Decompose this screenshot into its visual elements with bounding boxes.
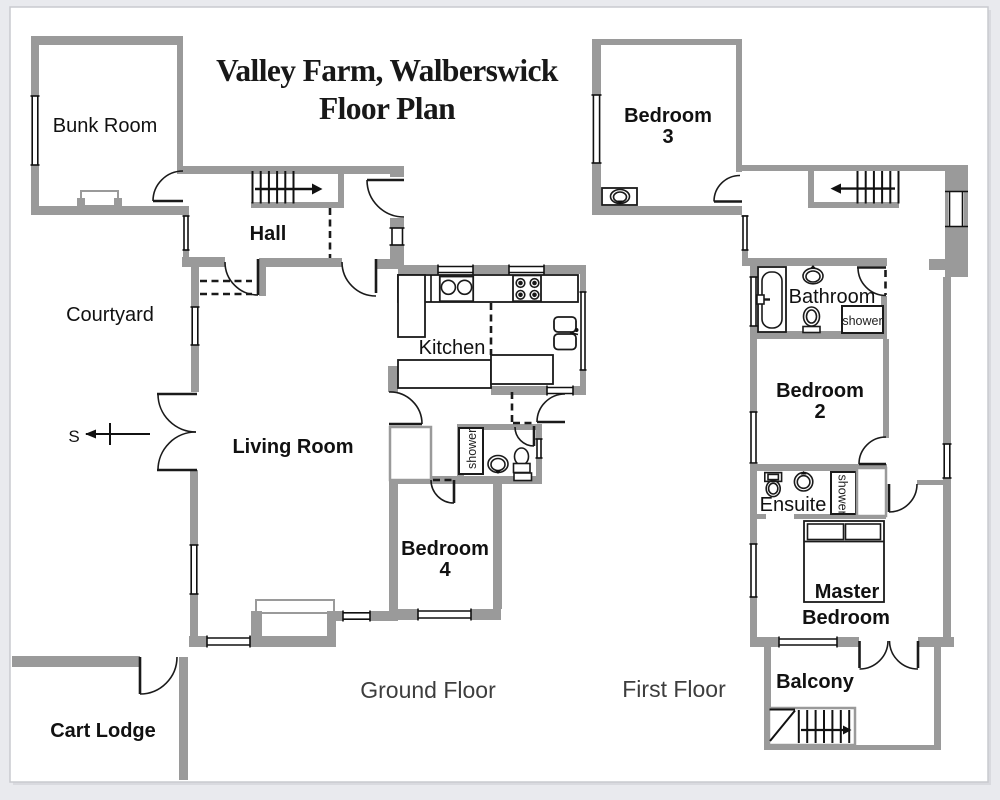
- svg-text:Living Room: Living Room: [232, 436, 353, 458]
- svg-text:Bedroom: Bedroom: [776, 380, 864, 402]
- svg-text:Hall: Hall: [250, 223, 287, 245]
- svg-text:Bedroom: Bedroom: [802, 607, 890, 629]
- svg-text:Bathroom: Bathroom: [789, 286, 876, 308]
- svg-text:3: 3: [662, 126, 673, 148]
- svg-text:Balcony: Balcony: [776, 671, 855, 693]
- svg-text:Ensuite: Ensuite: [760, 494, 827, 516]
- svg-text:shower: shower: [836, 475, 850, 515]
- svg-text:Floor Plan: Floor Plan: [319, 91, 456, 126]
- svg-text:Master: Master: [815, 581, 880, 603]
- svg-text:shower: shower: [465, 429, 479, 469]
- svg-text:Courtyard: Courtyard: [66, 304, 154, 326]
- svg-text:Cart Lodge: Cart Lodge: [50, 720, 156, 742]
- svg-text:S: S: [68, 427, 79, 446]
- svg-text:First Floor: First Floor: [622, 676, 726, 702]
- svg-text:Kitchen: Kitchen: [419, 337, 486, 359]
- svg-text:Valley Farm, Walberswick: Valley Farm, Walberswick: [216, 53, 559, 88]
- svg-text:shower: shower: [842, 314, 882, 328]
- svg-text:Bedroom: Bedroom: [624, 105, 712, 127]
- svg-text:Ground Floor: Ground Floor: [360, 677, 496, 703]
- svg-text:4: 4: [439, 559, 451, 581]
- svg-text:2: 2: [814, 401, 825, 423]
- svg-text:Bedroom: Bedroom: [401, 538, 489, 560]
- svg-text:Bunk Room: Bunk Room: [53, 115, 158, 137]
